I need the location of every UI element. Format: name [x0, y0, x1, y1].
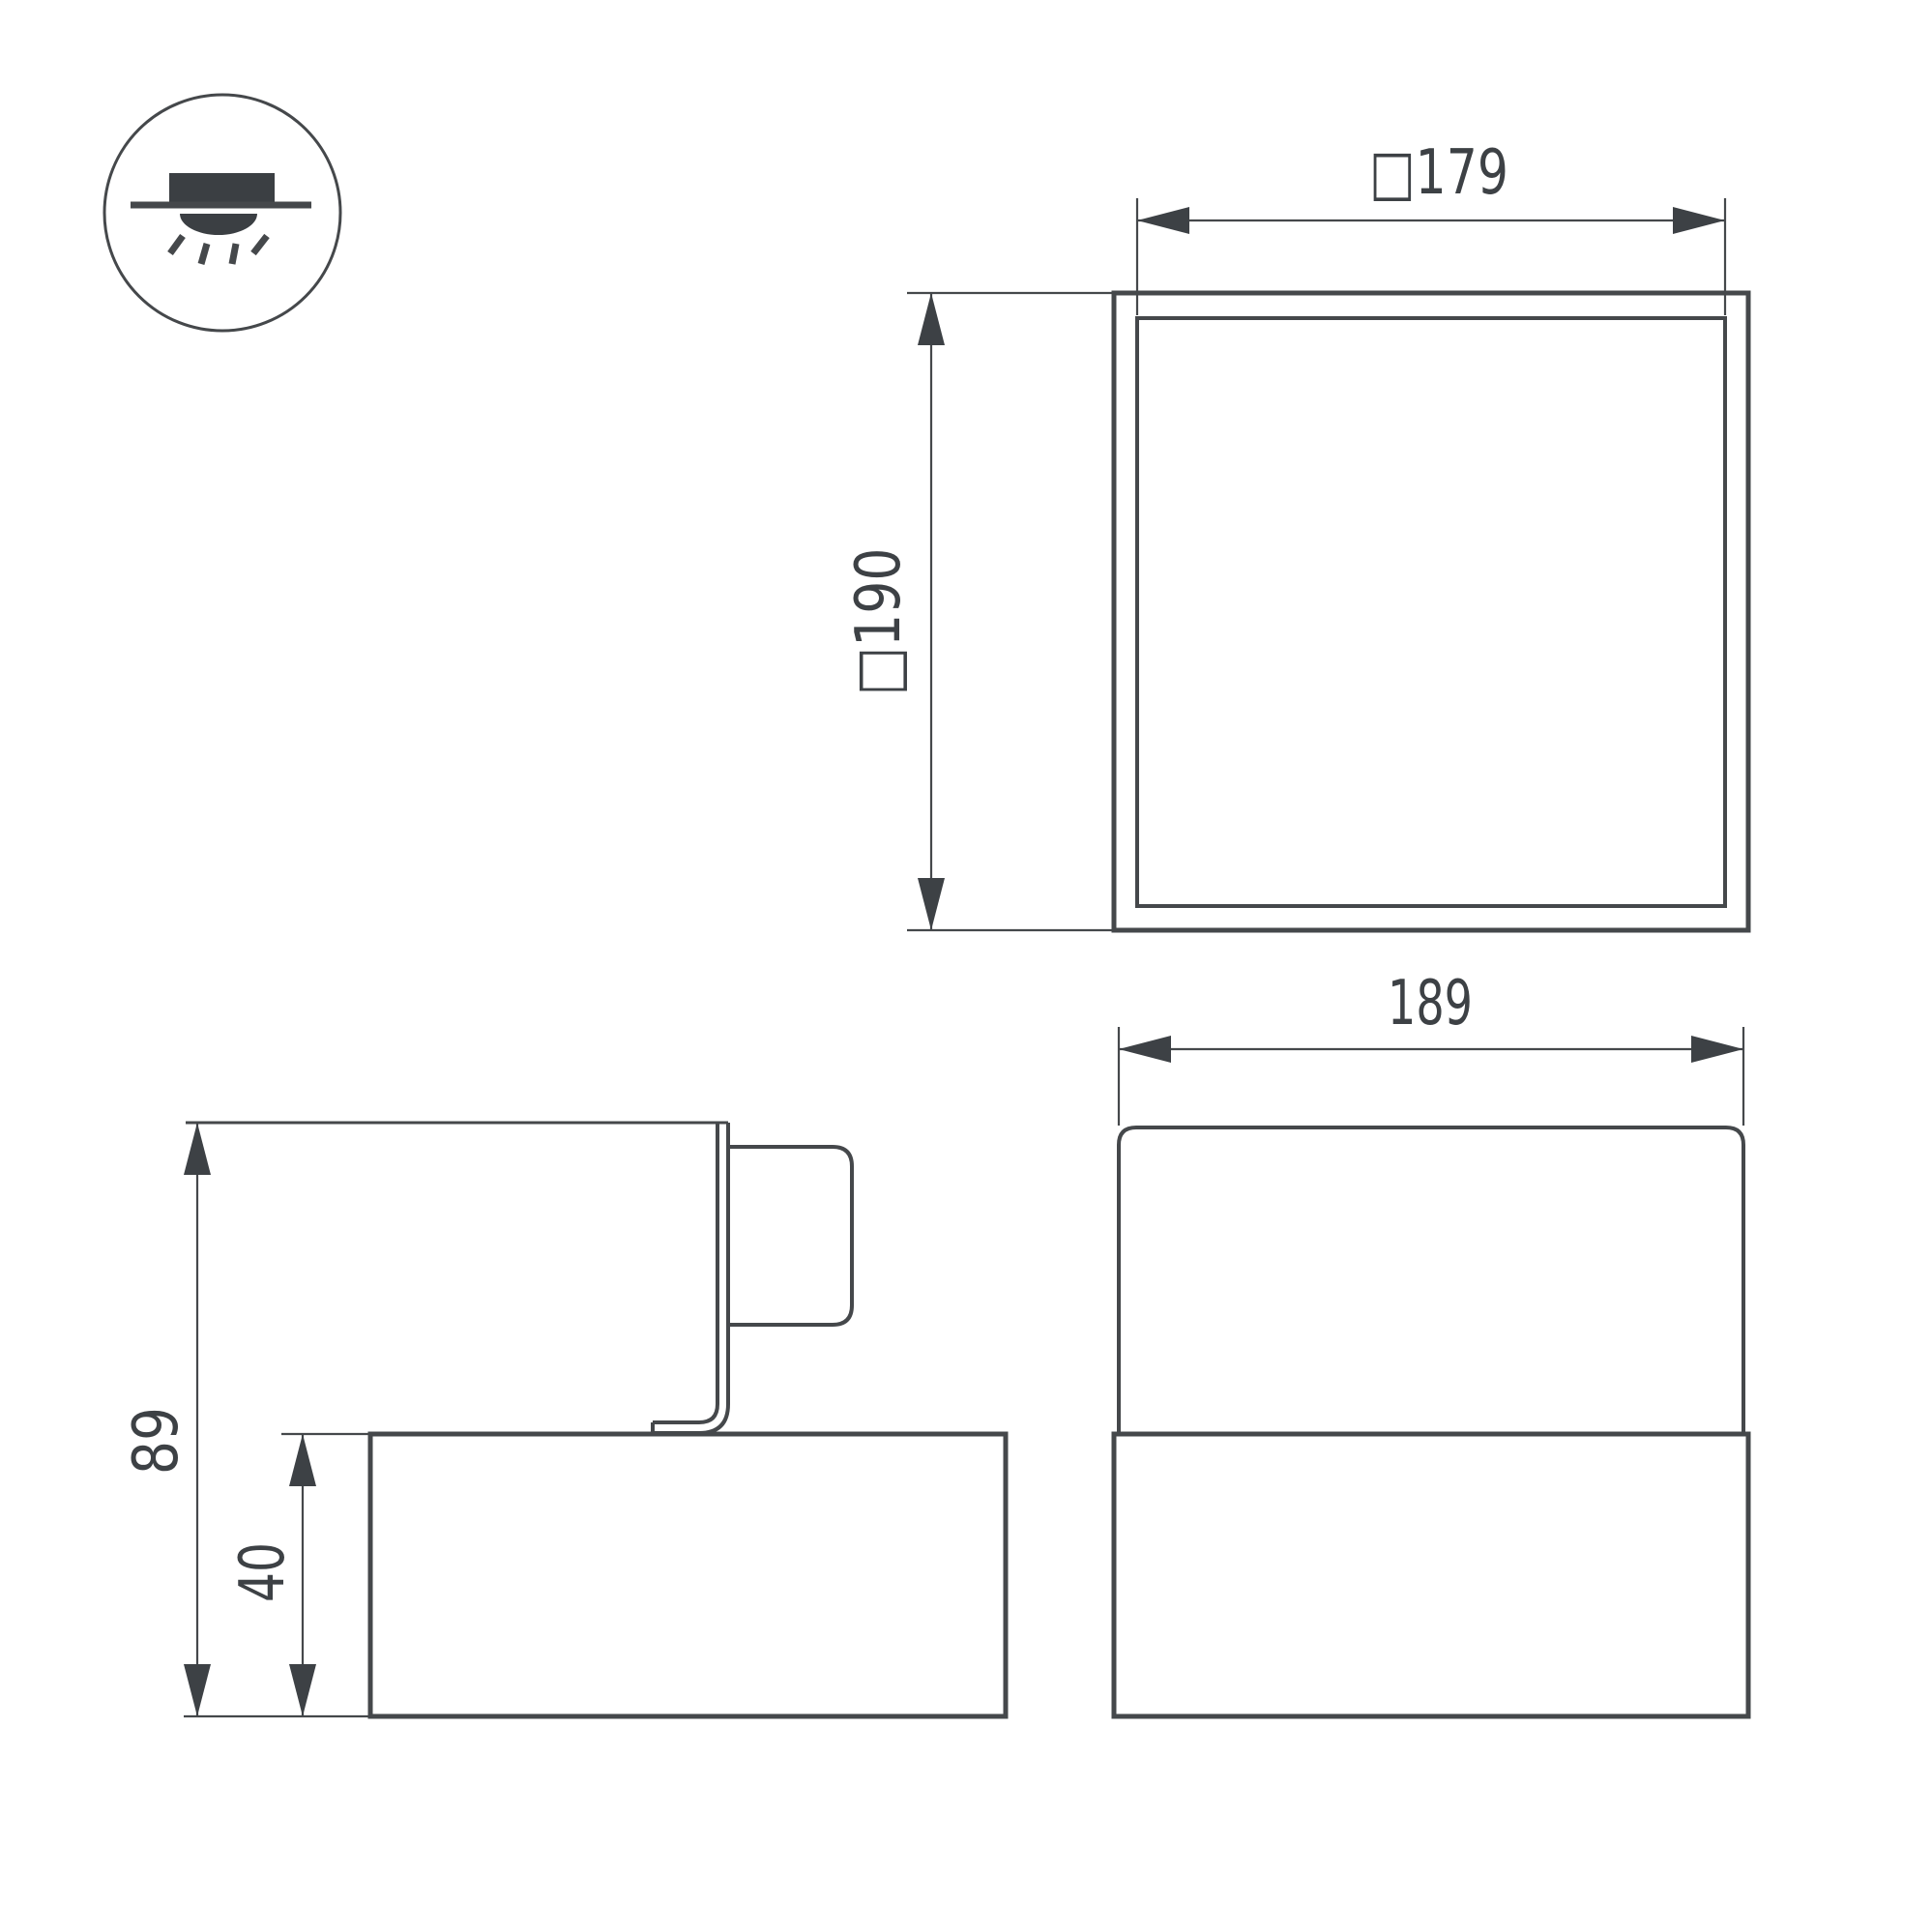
arrowhead-left	[1137, 207, 1189, 234]
dimension-front-width: 189	[1119, 968, 1743, 1126]
top-view-outer-frame	[1114, 293, 1748, 930]
icon-circle	[104, 95, 340, 331]
arrowhead-left	[1119, 1036, 1171, 1063]
arrowhead-right	[1673, 207, 1725, 234]
icon-light-dome	[180, 214, 257, 235]
dimension-label-40: 40	[227, 1542, 299, 1602]
top-view-inner-panel	[1137, 318, 1725, 906]
front-view-upper-shade	[1119, 1127, 1743, 1434]
arrowhead-down	[184, 1664, 211, 1716]
dimension-side-body-height: 40	[227, 1434, 370, 1716]
arrowhead-up	[918, 293, 945, 345]
dimension-top-width: □179	[1137, 137, 1725, 315]
side-view-driver-box	[728, 1147, 852, 1325]
top-view: □179 □190	[843, 137, 1748, 930]
dimension-label-189: 189	[1388, 968, 1473, 1039]
icon-housing	[169, 173, 275, 205]
front-view: 189	[1114, 968, 1748, 1716]
surface-mounted-downlight-icon	[104, 95, 340, 331]
dimension-label-89: 89	[121, 1407, 192, 1475]
arrowhead-down	[918, 878, 945, 930]
arrowhead-up	[289, 1434, 316, 1486]
front-view-body	[1114, 1434, 1748, 1716]
side-view: 89 40	[121, 1123, 1006, 1716]
arrowhead-up	[184, 1123, 211, 1175]
technical-drawing: □179 □190 89	[0, 0, 1932, 1932]
icon-light-rays	[170, 236, 267, 264]
side-view-body	[370, 1434, 1006, 1716]
dimension-drawing-page: □179 □190 89	[0, 0, 1932, 1932]
dimension-label-190: □190	[843, 548, 915, 696]
arrowhead-down	[289, 1664, 316, 1716]
dimension-side-total-height: 89	[121, 1123, 370, 1716]
side-view-bracket	[653, 1123, 728, 1433]
arrowhead-right	[1691, 1036, 1743, 1063]
dimension-label-179: □179	[1369, 137, 1508, 209]
dimension-top-height: □190	[843, 293, 1114, 930]
